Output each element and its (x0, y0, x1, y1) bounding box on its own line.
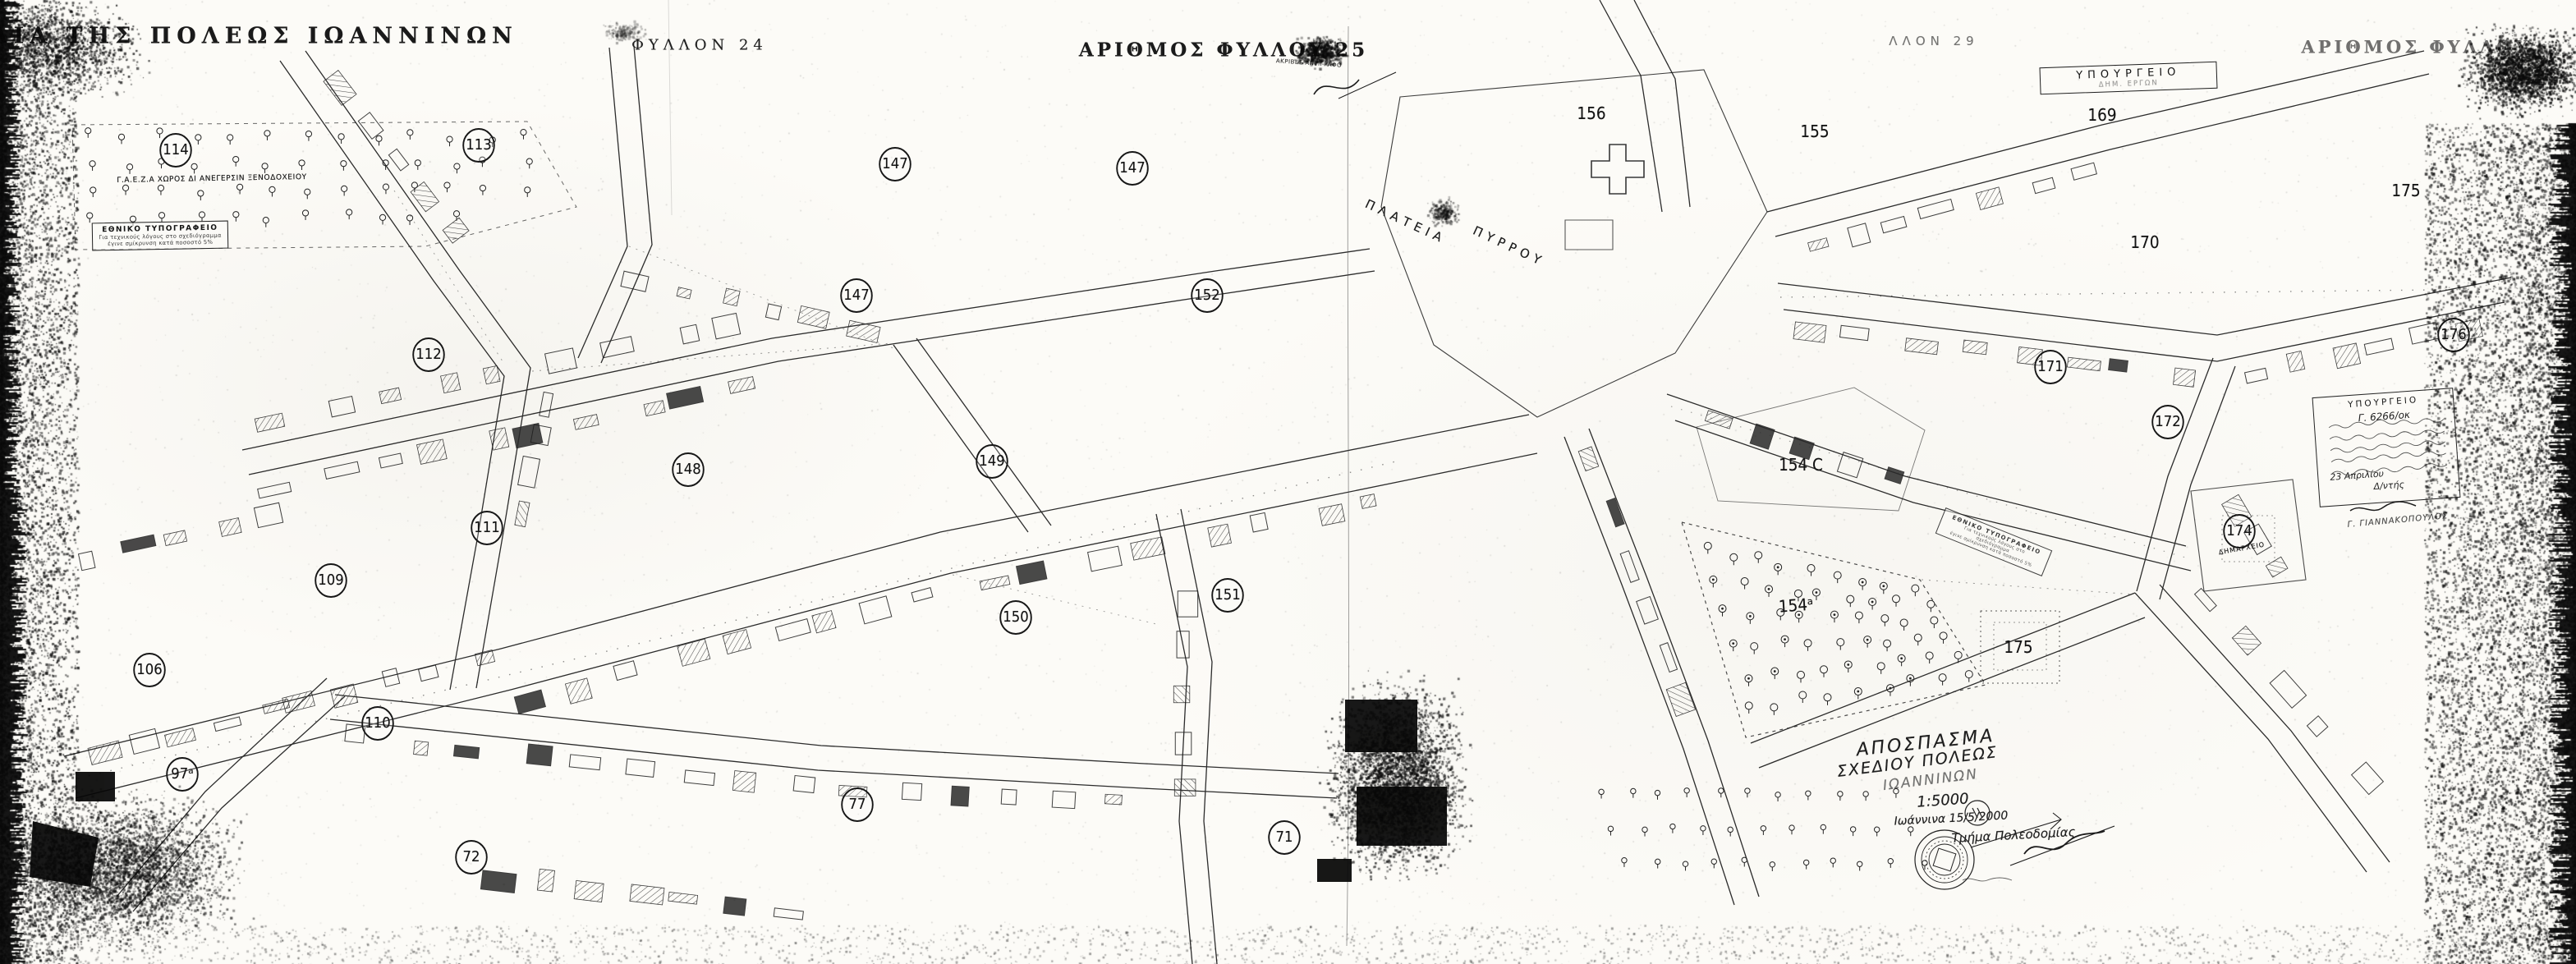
block-number-circled: 147 (879, 147, 911, 181)
block-number-plain: 156 (1577, 103, 1605, 123)
block-number-circled: 176 (2437, 318, 2469, 352)
block-number-circled: 149 (976, 444, 1008, 479)
block-number-circled: 72 (455, 840, 487, 874)
excerpt-stamp-scale: 1:5000 (1917, 790, 1970, 810)
sheet-label-25: ΑΡΙΘΜΟΣ ΦΥΛΛΟΥ 25 (1079, 39, 1368, 62)
square-label-pyrrou: ΠΥΡΡΟΥ (1471, 223, 1548, 270)
block-number-circled: 106 (133, 653, 165, 687)
block-number-circled: 171 (2034, 350, 2066, 384)
ministry-box: ΥΠΟΥΡΓΕΙΟ ΔΗΜ. ΕΡΓΩΝ (2039, 62, 2217, 95)
block-number-circled: 112 (412, 337, 444, 372)
block-number-circled: 148 (672, 452, 704, 487)
block-number-circled: 111 (471, 511, 503, 545)
block-number-circled: 113 (462, 128, 494, 163)
sheet-label-24: ΦΥΛΛΟΝ 24 (631, 37, 768, 54)
block-number-circled: 114 (159, 133, 191, 168)
block-number-circled: 172 (2151, 405, 2183, 439)
block-number-plain: 170 (2130, 232, 2159, 252)
block-number-circled: 152 (1191, 278, 1223, 313)
printing-office-note-line3: έγινε σμίκρυνση κατά ποσοστό 5% (99, 239, 222, 248)
grove-note: Γ.Α.Ε.Ζ.Α ΧΩΡΟΣ ΔΙ ΑΝΕΓΕΡΣΙΝ ΞΕΝΟΔΟΧΕΙΟΥ (117, 173, 307, 185)
block-number-plain: 154 C (1779, 455, 1823, 475)
block-number-circled: 150 (999, 600, 1031, 635)
block-number-circled: 109 (315, 563, 347, 598)
block-number-plain: 155 (1800, 122, 1829, 141)
block-number-circled: 147 (840, 278, 872, 313)
block-number-plain: 169 (2087, 105, 2116, 125)
block-number-circled: 151 (1211, 578, 1243, 613)
label-layer: ΧΕΔΙΑ ΤΗΣ ΠΟΛΕΩΣ ΙΩΑΝΝΙΝΩΝ ΦΥΛΛΟΝ 24 ΑΡΙ… (0, 0, 2576, 964)
block-number-circled: 147 (1116, 151, 1148, 186)
block-number-circled: 174 (2223, 514, 2255, 549)
scanned-city-plan: ΧΕΔΙΑ ΤΗΣ ΠΟΛΕΩΣ ΙΩΑΝΝΙΝΩΝ ΦΥΛΛΟΝ 24 ΑΡΙ… (0, 0, 2576, 964)
excerpt-stamp-date: Ιωάννινα 15/5/2000 (1894, 809, 2008, 828)
printing-office-note-2: ΕΘΝΙΚΟ ΤΥΠΟΓΡΑΦΕΙΟ Για τεχνικούς λόγους … (1935, 507, 2053, 576)
square-label-plateia: ΠΛΑΤΕΙΑ (1363, 196, 1449, 247)
ministry-handwritten-note: ΥΠΟΥΡΓΕΙΟ Γ. 6266/οκ 23 Απριλίου Δ/ντής (2312, 388, 2461, 507)
printing-office-note2-line2: Για τεχνικούς λόγους στο σχεδιόγραμμα (1945, 519, 2042, 567)
block-number-plain: 154ᵃ (1778, 594, 1814, 616)
block-number-plain: 175 (2004, 637, 2032, 657)
ministry-note-signature: Γ. ΓΙΑΝΝΑΚΟΠΟΥΛΟΣ (2347, 512, 2449, 530)
sheet-label-29: ΛΛΟΝ 29 (1889, 34, 1978, 48)
block-number-circled: 97ᵃ (166, 757, 198, 792)
excerpt-stamp-dept: Τμήμα Πολεοδομίας (1951, 824, 2075, 846)
block-number-plain: 175 (2391, 181, 2420, 200)
block-number-circled: 77 (841, 787, 873, 822)
map-title: ΧΕΔΙΑ ΤΗΣ ΠΟΛΕΩΣ ΙΩΑΝΝΙΝΩΝ (0, 24, 518, 49)
sheet-label-right: ΑΡΙΘΜΟΣ ΦΥΛΛΟΥ (2301, 37, 2530, 57)
printing-office-note: ΕΘΝΙΚΟ ΤΥΠΟΓΡΑΦΕΙΟ Για τεχνικούς λόγους … (92, 221, 229, 251)
block-number-circled: 71 (1268, 820, 1300, 855)
block-number-circled: 110 (361, 706, 393, 741)
